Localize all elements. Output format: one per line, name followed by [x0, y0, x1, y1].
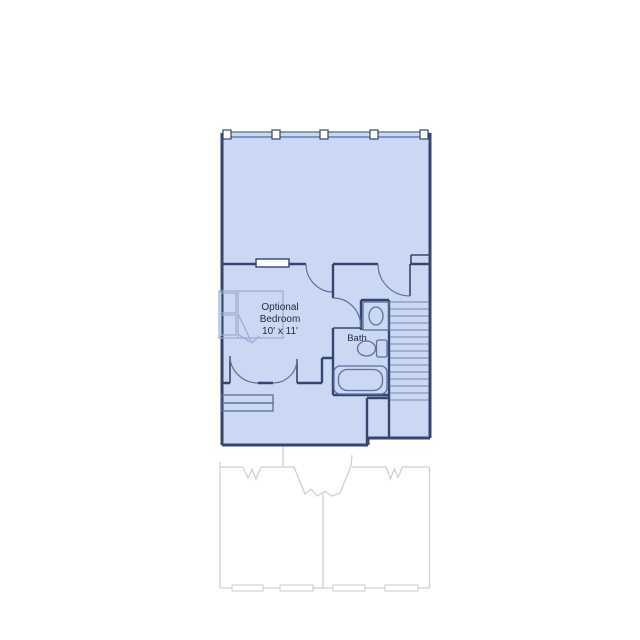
- railing-post: [320, 130, 328, 139]
- railing-post: [223, 130, 231, 139]
- railing-post: [272, 130, 280, 139]
- floorplan-page: Optional Bedroom 10' x 11' Bath: [0, 0, 640, 640]
- bedroom-label: Optional Bedroom 10' x 11': [260, 302, 301, 337]
- loft-window: [256, 259, 289, 267]
- upper-floor-fill: [222, 132, 430, 445]
- lower-level-outline: [220, 447, 430, 591]
- bedroom-dimensions: 10' x 11': [262, 326, 298, 337]
- bedroom-label-line2: Bedroom: [260, 314, 301, 325]
- railing-post: [370, 130, 378, 139]
- railing-post: [420, 130, 428, 139]
- floorplan-svg: Optional Bedroom 10' x 11' Bath: [0, 0, 640, 640]
- bedroom-label-line1: Optional: [261, 302, 298, 313]
- bath-label: Bath: [347, 333, 367, 344]
